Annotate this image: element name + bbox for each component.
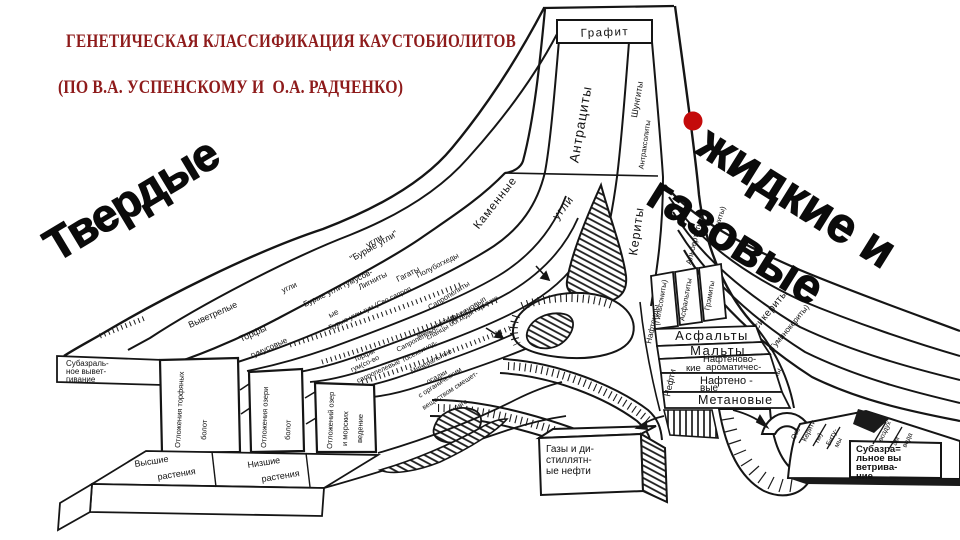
svg-text:Антраксолиты: Антраксолиты	[637, 120, 653, 170]
svg-text:ароматичес-: ароматичес-	[706, 362, 761, 373]
svg-text:угли: угли	[551, 194, 577, 223]
svg-text:Асфальты: Асфальты	[675, 328, 749, 343]
svg-text:стиллятн-: стиллятн-	[546, 455, 592, 466]
svg-text:Метановые: Метановые	[698, 393, 773, 407]
svg-text:болот: болот	[283, 419, 293, 440]
svg-text:Шунгиты: Шунгиты	[629, 81, 645, 119]
svg-text:болот: болот	[199, 419, 209, 440]
svg-text:кие: кие	[686, 363, 701, 374]
svg-text:ые: ые	[327, 307, 341, 320]
svg-text:гивание: гивание	[66, 375, 96, 384]
svg-text:и морских: и морских	[340, 411, 350, 446]
svg-text:Бурые угли гум.(Сво сапроп.: Бурые угли гум.(Сво сапроп.	[328, 285, 414, 332]
svg-text:Графит: Графит	[580, 26, 629, 40]
svg-text:ведение: ведение	[355, 414, 365, 443]
svg-text:Полубогхеды: Полубогхеды	[415, 251, 460, 280]
svg-text:ние: ние	[856, 471, 873, 482]
svg-text:Антрациты: Антрациты	[566, 85, 594, 164]
svg-text:угли: угли	[280, 280, 298, 295]
svg-text:Торфы: Торфы	[238, 323, 268, 344]
svg-text:ые нефти: ые нефти	[546, 465, 591, 477]
svg-text:гумусовые: гумусовые	[249, 335, 289, 359]
svg-text:Газы и ди-: Газы и ди-	[546, 444, 594, 455]
svg-text:Выветрелые: Выветрелые	[187, 299, 239, 329]
